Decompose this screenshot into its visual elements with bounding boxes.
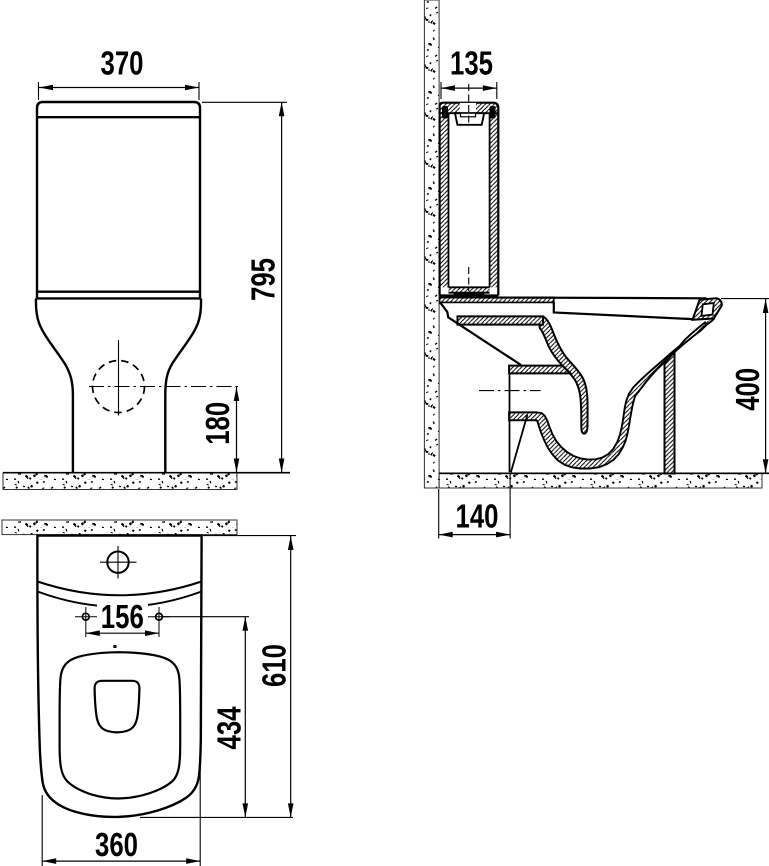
svg-text:400: 400 <box>730 368 767 411</box>
svg-text:434: 434 <box>211 706 248 749</box>
svg-text:135: 135 <box>450 45 493 82</box>
svg-text:795: 795 <box>246 258 283 301</box>
svg-text:370: 370 <box>101 46 144 83</box>
svg-text:360: 360 <box>95 827 138 864</box>
svg-text:156: 156 <box>101 599 144 636</box>
svg-text:180: 180 <box>200 402 237 445</box>
svg-text:610: 610 <box>256 644 293 687</box>
svg-text:140: 140 <box>456 498 499 535</box>
